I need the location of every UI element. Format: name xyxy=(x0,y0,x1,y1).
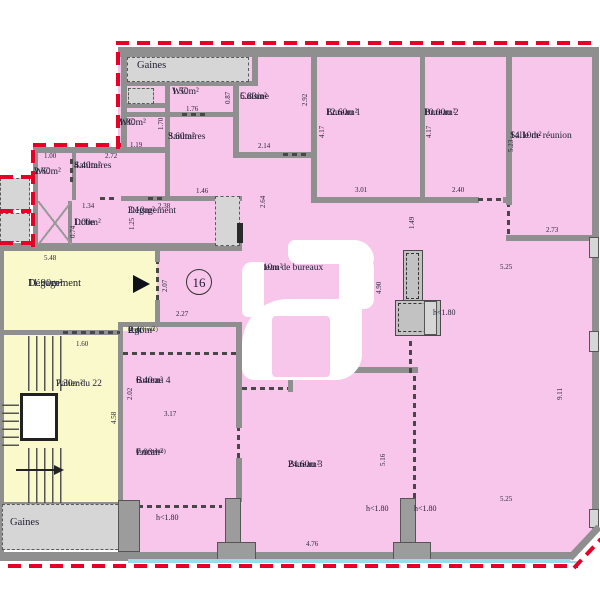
room-name: Gaines xyxy=(137,60,166,72)
property-boundary xyxy=(8,564,578,568)
wall xyxy=(592,47,599,529)
dimension-label: 2.73 xyxy=(546,226,558,234)
door-opening xyxy=(182,113,209,116)
frontage-line xyxy=(128,559,580,563)
property-boundary xyxy=(116,41,598,45)
room-area: 10.00m² xyxy=(424,108,456,119)
central-duct-inner xyxy=(406,253,419,299)
dimension-label: 1.00 xyxy=(44,152,56,160)
dimension-label: 1.46 xyxy=(196,187,208,195)
small-shaft xyxy=(128,88,154,104)
dimension-label: 4.58 xyxy=(110,412,118,424)
watermark-logo-hole xyxy=(272,316,330,377)
wall xyxy=(118,47,598,57)
room-area: 1.00m² xyxy=(74,218,101,229)
wall xyxy=(165,86,170,201)
column xyxy=(225,498,241,544)
entrance-arrow-icon xyxy=(133,275,150,293)
entry-opening xyxy=(156,262,159,300)
dimension-label: 1.25 xyxy=(128,218,136,230)
wall xyxy=(121,112,238,117)
room-area: 7.00m² xyxy=(136,448,163,459)
wall xyxy=(233,86,239,157)
stair-flight xyxy=(2,398,19,446)
dimension-label: 2.14 xyxy=(258,142,270,150)
dimension-label: 4.17 xyxy=(425,126,433,138)
dimension-label: 3.01 xyxy=(355,186,367,194)
door-opening xyxy=(70,158,73,182)
dimension-label: 5.25 xyxy=(500,495,512,503)
dimension-label: 1.70 xyxy=(157,118,165,130)
height-note: h<1.80 xyxy=(156,513,179,522)
dimension-label: 2.92 xyxy=(301,94,309,106)
stair-direction-arrow-icon xyxy=(54,465,64,475)
door-leaf xyxy=(237,223,243,243)
room-area: 6.40m² xyxy=(136,376,163,387)
room-name: Gaines xyxy=(10,517,39,529)
property-boundary xyxy=(116,41,120,149)
property-boundary xyxy=(0,209,31,213)
dimension-label: 1.60 xyxy=(76,340,88,348)
stair-flight xyxy=(28,448,64,503)
room-area: 24.60m² xyxy=(288,460,320,471)
room-area: 3.10m² xyxy=(128,206,155,217)
wall xyxy=(155,300,160,322)
window-symbol xyxy=(589,331,599,352)
room-area: 3.60m² xyxy=(168,132,195,143)
window-symbol xyxy=(589,509,599,528)
exterior-shaft xyxy=(0,178,30,210)
dimension-label: 4.17 xyxy=(318,126,326,138)
dimension-label: 4.76 xyxy=(306,540,318,548)
room-area: 1.80m² xyxy=(119,118,146,129)
wall xyxy=(503,197,512,203)
room-area: 12.60m² xyxy=(326,108,358,119)
dimension-label: 4.90 xyxy=(375,282,383,294)
column xyxy=(118,500,140,552)
property-boundary xyxy=(33,143,121,147)
floor-plan: 16 Gaines WC1.50m² WC1.80m² Sanitaires3.… xyxy=(0,0,600,600)
dimension-label: 2.40 xyxy=(452,186,464,194)
door-opening xyxy=(242,387,288,390)
window-symbol xyxy=(589,237,599,258)
wall xyxy=(311,197,479,203)
dimension-label: 2.64 xyxy=(259,196,267,208)
dashed-partition xyxy=(138,505,222,508)
room-area: 7.30m² xyxy=(56,378,83,391)
dimension-label: 3.17 xyxy=(164,410,176,418)
height-note: h<1.80 xyxy=(414,504,437,513)
room-area: 1.50m² xyxy=(172,87,199,98)
dashed-partition xyxy=(413,374,416,498)
duct-door xyxy=(424,301,437,335)
dimension-label: 1.49 xyxy=(408,217,416,229)
dimension-label: 2.38 xyxy=(158,202,170,210)
dimension-label: 5.25 xyxy=(500,263,512,271)
wall xyxy=(155,251,160,262)
door-opening xyxy=(148,197,164,200)
dimension-label: 0.74 xyxy=(69,226,77,238)
room-area: 11.90m² xyxy=(28,278,63,290)
dimension-label: 5.48 xyxy=(44,254,56,262)
door-opening xyxy=(63,331,120,334)
wall xyxy=(236,322,242,428)
wall xyxy=(506,235,598,241)
door-opening xyxy=(237,428,240,458)
dashed-partition xyxy=(123,352,236,355)
door-opening xyxy=(283,153,310,156)
property-boundary xyxy=(0,241,34,245)
dimension-label: 1.34 xyxy=(82,202,94,210)
wall xyxy=(252,57,258,86)
unit-number-marker: 16 xyxy=(186,269,212,295)
wall xyxy=(311,57,317,203)
room-area: 2.60m² xyxy=(34,167,61,178)
dimension-label: 0.87 xyxy=(224,92,232,104)
dimension-label: 2.27 xyxy=(176,310,188,318)
dimension-label: 2.02 xyxy=(126,388,134,400)
dimension-label: 1.76 xyxy=(186,105,198,113)
dimension-label: 1.19 xyxy=(130,141,142,149)
wall xyxy=(118,322,123,502)
void-cross xyxy=(38,201,72,245)
dimension-label: 5.23 xyxy=(507,140,515,152)
exterior-shaft xyxy=(0,213,30,242)
room-area: 2.40m² xyxy=(128,326,155,337)
wall xyxy=(0,243,242,251)
property-boundary xyxy=(0,175,31,179)
dimension-label: 2.07 xyxy=(161,280,169,292)
property-boundary xyxy=(31,147,35,247)
door-opening xyxy=(478,198,504,201)
dashed-partition xyxy=(409,337,412,373)
door-opening xyxy=(100,197,118,200)
height-note: h<1.80 xyxy=(433,308,456,317)
stair-direction-line xyxy=(16,469,56,471)
elevator-shaft xyxy=(20,393,58,441)
wall xyxy=(236,458,242,502)
dimension-label: 5.16 xyxy=(379,454,387,466)
height-note: h<1.80 xyxy=(366,504,389,513)
dimension-label: 2.72 xyxy=(105,152,117,160)
room-area: 5.80m² xyxy=(240,92,267,103)
dimension-label: 9.11 xyxy=(556,388,564,400)
room-area: 4.40m² xyxy=(74,161,101,172)
door-opening xyxy=(507,205,510,234)
